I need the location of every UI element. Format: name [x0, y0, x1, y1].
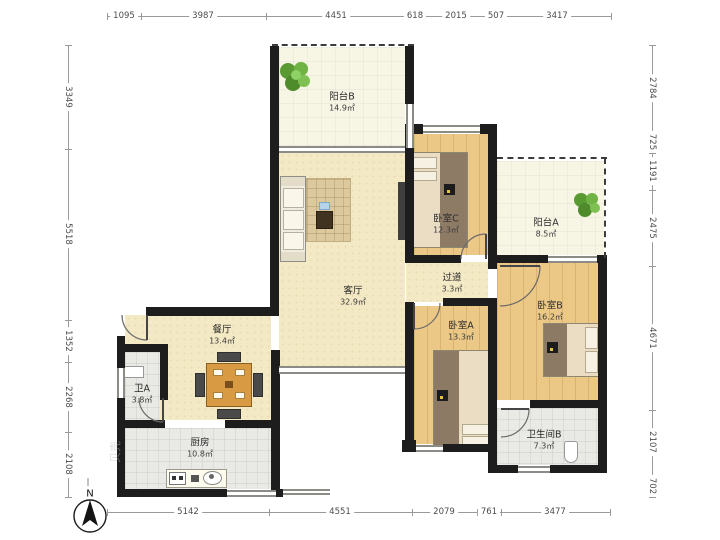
window	[283, 489, 330, 495]
window	[227, 490, 276, 497]
sofa-cushion	[283, 188, 304, 208]
sliding-door	[279, 146, 405, 153]
wall	[530, 400, 598, 408]
room-area: 7.3㎡	[534, 442, 555, 452]
dimension-tick	[649, 45, 656, 46]
dimension-value: 1095	[110, 11, 138, 21]
sliding-door	[548, 256, 597, 263]
dimension-value: 2475	[647, 214, 657, 242]
room-area: 32.9㎡	[340, 298, 366, 308]
dimension-tick	[107, 13, 108, 20]
dimension-value: 4671	[647, 324, 657, 352]
wall	[117, 344, 168, 352]
room-name: 厨房	[190, 438, 209, 450]
wall	[405, 46, 414, 104]
gadget-light	[440, 396, 443, 399]
dimension-value: 2079	[430, 507, 458, 517]
compass-north-label: N	[83, 489, 96, 500]
dining-chair	[217, 409, 241, 419]
dimension-tick	[65, 432, 72, 433]
dimension-value: 761	[478, 507, 500, 517]
dimension-value: 2107	[647, 428, 657, 456]
dining-chair	[217, 352, 241, 362]
dimension-value: 2784	[647, 74, 657, 102]
dimension-tick	[649, 153, 656, 154]
toilet	[564, 441, 578, 463]
dimension-value: 3417	[543, 11, 571, 21]
room-area: 13.3㎡	[448, 333, 474, 343]
dining-chair	[195, 373, 205, 397]
dimension-value: 3987	[189, 11, 217, 21]
pillow	[413, 157, 437, 169]
pillow	[585, 351, 598, 373]
watermark: 贝壳	[107, 441, 123, 463]
room-label-balcony-a: 阳台A 8.5㎡	[533, 218, 559, 241]
room-name: 卫生间B	[526, 430, 561, 442]
dining-chair	[253, 373, 263, 397]
place-mat	[235, 369, 245, 376]
dimension-value: 702	[647, 475, 657, 497]
coffee-table	[316, 211, 333, 229]
dimension-tick	[649, 190, 656, 191]
dimension-tick	[65, 362, 72, 363]
room-name: 阳台B	[329, 92, 355, 104]
balcony-open-edge	[272, 44, 414, 49]
gadget-light	[447, 190, 450, 193]
sofa-cushion	[283, 232, 304, 250]
dimension-tick	[65, 45, 72, 46]
room-label-dining-room: 餐厅 13.4㎡	[209, 325, 235, 348]
dimension-value: 5142	[174, 507, 202, 517]
wall	[225, 420, 278, 428]
wall	[160, 352, 168, 400]
room-label-bathroom-b: 卫生间B 7.3㎡	[526, 430, 561, 453]
dimension-value: 3349	[63, 83, 73, 111]
dimension-value: 1191	[647, 157, 657, 185]
room-area: 16.2㎡	[537, 313, 563, 323]
compass-icon	[74, 478, 106, 532]
pillow	[413, 171, 437, 181]
room-name: 卧室C	[433, 214, 459, 226]
room-label-corridor: 过道 3.3㎡	[442, 273, 463, 296]
place-mat	[235, 392, 245, 399]
gadget-light	[550, 348, 553, 351]
dimension-tick	[501, 509, 502, 516]
window	[518, 466, 550, 473]
pillow	[585, 327, 598, 349]
wall	[488, 124, 497, 265]
room-name: 餐厅	[212, 325, 231, 337]
place-mat	[213, 369, 223, 376]
dimension-tick	[141, 13, 142, 20]
dimension-value: 2108	[63, 450, 73, 478]
room-name: 过道	[442, 273, 461, 285]
sofa-armrest	[281, 177, 305, 186]
room-label-bedroom-b: 卧室B 16.2㎡	[537, 301, 563, 324]
dimension-value: 5518	[63, 220, 73, 248]
rug	[306, 178, 351, 242]
dimension-tick	[269, 509, 270, 516]
wall	[405, 255, 461, 263]
balcony-open-edge	[497, 157, 607, 162]
balcony-a-floor	[497, 161, 604, 255]
window	[117, 368, 125, 398]
room-label-kitchen: 厨房 10.8㎡	[187, 438, 213, 461]
wall	[402, 440, 416, 452]
dimension-value: 725	[647, 131, 657, 153]
dimension-value: 618	[404, 11, 426, 21]
dimension-value: 4451	[322, 11, 350, 21]
room-name: 阳台A	[533, 218, 559, 230]
dimension-tick	[266, 13, 267, 20]
room-name: 客厅	[343, 286, 362, 298]
wall	[146, 307, 279, 316]
wall	[117, 420, 165, 428]
dimension-value: 2268	[63, 383, 73, 411]
room-area: 14.9㎡	[329, 104, 355, 114]
window	[279, 366, 405, 374]
washbasin	[123, 366, 144, 378]
dimension-tick	[412, 509, 413, 516]
room-area: 3.3㎡	[442, 285, 463, 295]
wall	[117, 340, 125, 497]
sofa-cushion	[283, 210, 304, 230]
balcony-open-edge	[604, 158, 609, 258]
tablet	[319, 202, 330, 210]
room-area: 12.3㎡	[433, 226, 459, 236]
dimension-value: 4551	[326, 507, 354, 517]
dimension-tick	[65, 497, 72, 498]
wall	[443, 444, 497, 452]
room-label-bedroom-a: 卧室A 13.3㎡	[448, 321, 474, 344]
table-centerpiece	[225, 381, 233, 388]
window	[423, 125, 480, 133]
dimension-value: 2015	[442, 11, 470, 21]
cutting-board	[191, 475, 199, 482]
room-label-living-room: 客厅 32.9㎡	[340, 286, 366, 309]
dimension-tick	[649, 410, 656, 411]
window	[416, 445, 443, 452]
wall	[598, 255, 607, 473]
dimension-value: 1352	[63, 327, 73, 355]
room-area: 8.5㎡	[536, 230, 557, 240]
room-name: 卧室A	[448, 321, 474, 333]
room-area: 10.8㎡	[187, 450, 213, 460]
wall	[270, 46, 279, 315]
room-area: 3.8㎡	[132, 396, 153, 406]
wall	[117, 489, 227, 497]
room-area: 13.4㎡	[209, 337, 235, 347]
dimension-line-left	[68, 45, 69, 497]
room-label-balcony-b: 阳台B 14.9㎡	[329, 92, 355, 115]
place-mat	[213, 392, 223, 399]
dimension-tick	[649, 266, 656, 267]
wall	[488, 255, 548, 263]
pillow	[462, 424, 489, 435]
dimension-tick	[65, 149, 72, 150]
dimension-value: 507	[485, 11, 507, 21]
dimension-tick	[107, 509, 108, 516]
burner	[179, 476, 183, 480]
faucet	[209, 474, 214, 479]
room-name: 卫A	[134, 384, 150, 396]
dimension-line-top	[107, 16, 611, 17]
dimension-value: 3477	[541, 507, 569, 517]
sofa-armrest	[281, 252, 305, 261]
room-label-bathroom-a: 卫A 3.8㎡	[132, 384, 153, 407]
burner	[172, 476, 176, 480]
wall	[405, 302, 414, 452]
wall	[488, 465, 518, 473]
room-label-bedroom-c: 卧室C 12.3㎡	[433, 214, 459, 237]
dimension-tick	[649, 497, 656, 498]
dimension-tick	[610, 509, 611, 516]
floor-plan: N 贝壳 阳台B 14.9㎡ 客厅 32.9㎡ 餐厅 13.4㎡ 卫A 3.8㎡…	[0, 0, 720, 540]
wall	[550, 465, 607, 473]
window	[406, 104, 414, 148]
dimension-tick	[611, 13, 612, 20]
room-name: 卧室B	[537, 301, 563, 313]
dimension-tick	[65, 320, 72, 321]
